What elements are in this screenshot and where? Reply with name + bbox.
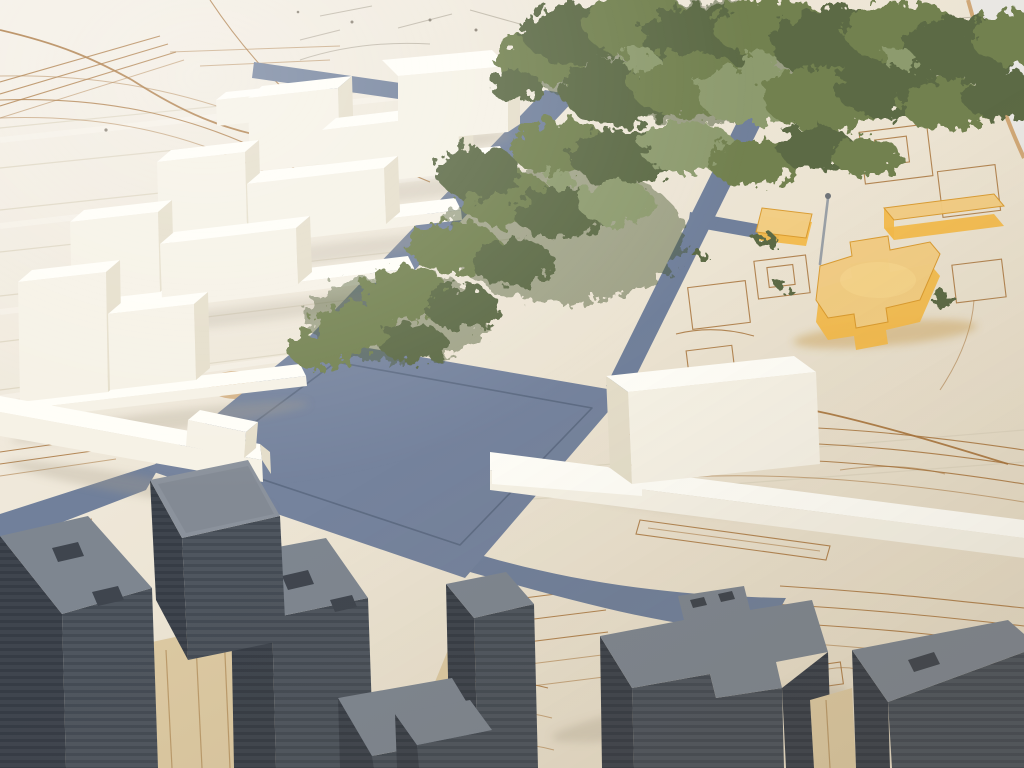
photo-architectural-model	[0, 0, 1024, 768]
model-scene	[0, 0, 1024, 768]
corner-vignette	[0, 0, 1024, 768]
